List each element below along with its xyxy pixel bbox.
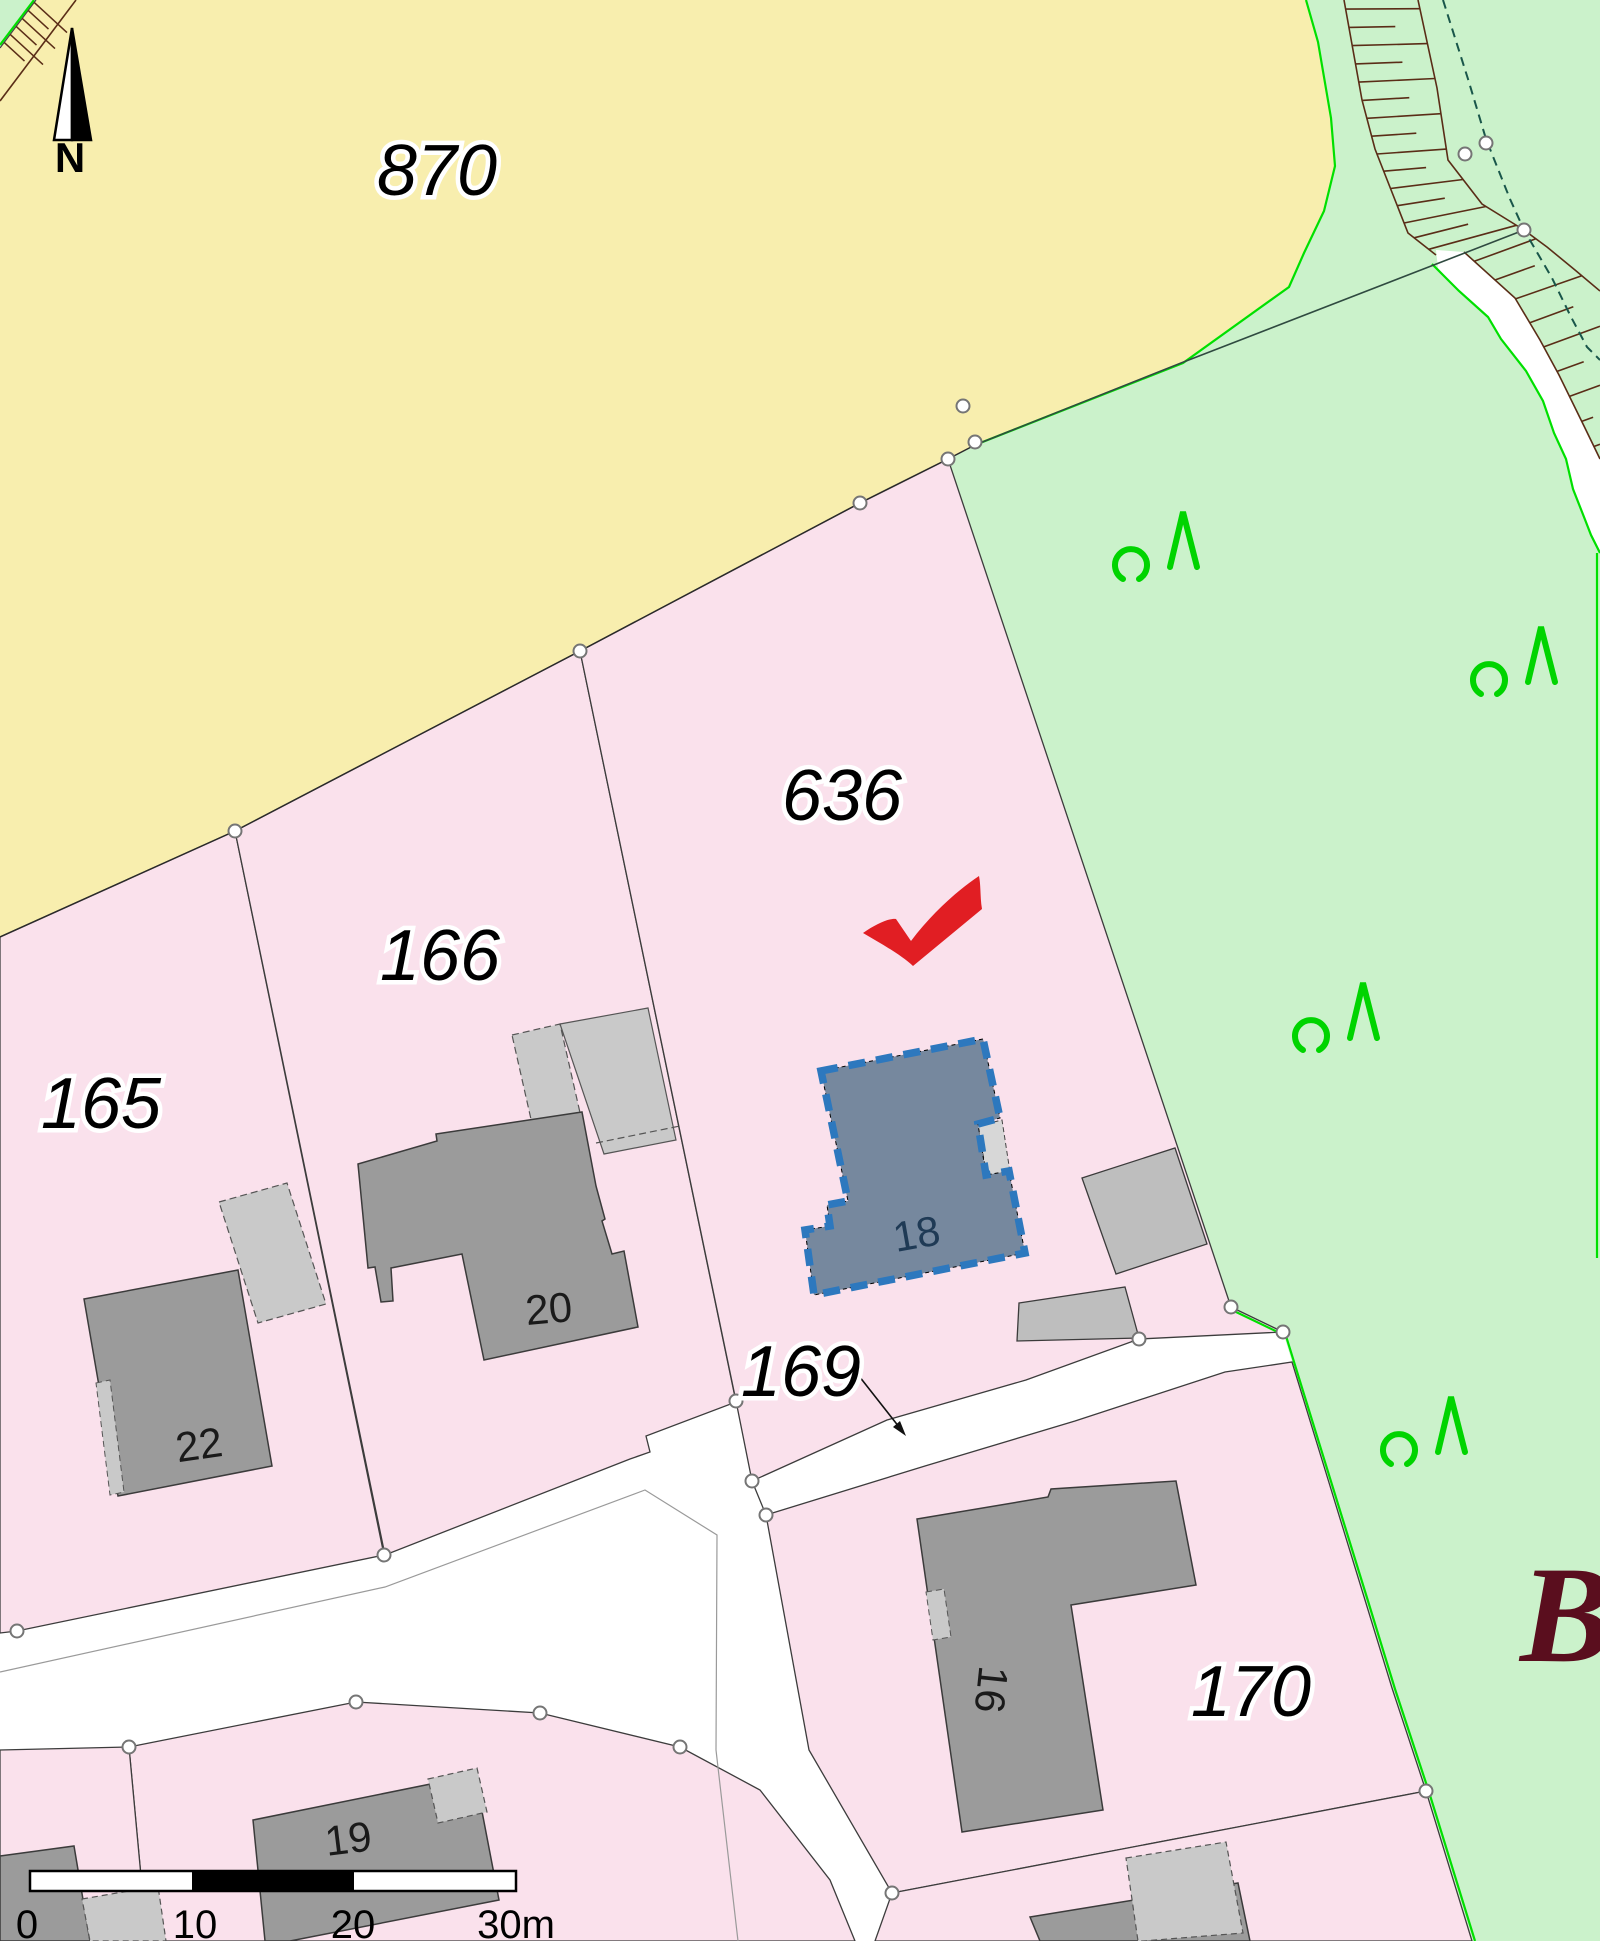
svg-text:22: 22: [173, 1418, 226, 1471]
svg-text:0: 0: [16, 1903, 38, 1941]
svg-text:19: 19: [322, 1812, 374, 1864]
svg-text:10: 10: [173, 1903, 218, 1941]
svg-text:30m: 30m: [477, 1903, 555, 1941]
svg-text:N: N: [55, 134, 85, 181]
svg-text:20: 20: [331, 1903, 376, 1941]
svg-text:16: 16: [966, 1664, 1018, 1715]
svg-text:870: 870: [377, 131, 497, 211]
svg-text:18: 18: [889, 1207, 943, 1261]
svg-text:170: 170: [1191, 1652, 1311, 1732]
svg-text:20: 20: [523, 1283, 574, 1334]
svg-text:B: B: [1518, 1538, 1600, 1691]
svg-text:165: 165: [41, 1064, 162, 1144]
svg-text:166: 166: [380, 916, 501, 996]
svg-text:636: 636: [782, 756, 903, 836]
svg-text:169: 169: [741, 1332, 861, 1412]
